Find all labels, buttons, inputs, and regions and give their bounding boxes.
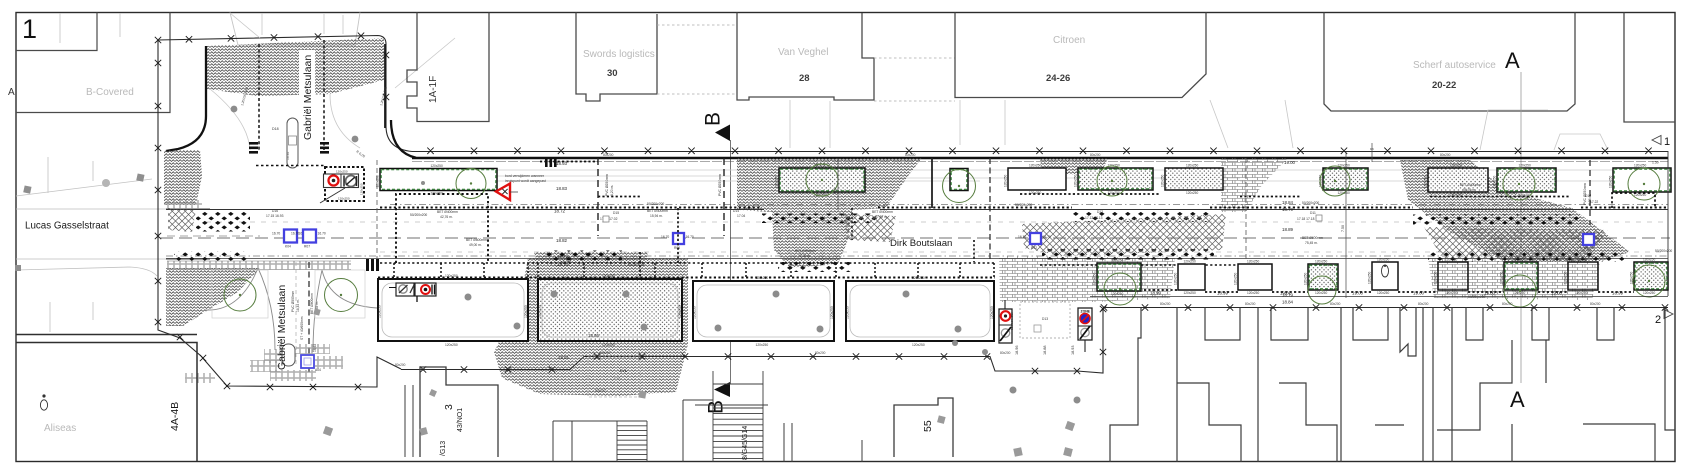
svg-text:18.83: 18.83	[556, 186, 568, 191]
svg-text:R6: R6	[1370, 147, 1374, 151]
svg-text:120x250: 120x250	[376, 175, 380, 187]
svg-text:120x250: 120x250	[336, 170, 348, 174]
svg-text:16.70: 16.70	[318, 232, 326, 236]
svg-text:120x250: 120x250	[1004, 175, 1008, 187]
svg-text:18.70: 18.70	[560, 260, 572, 265]
svg-text:1: 1	[1664, 136, 1670, 148]
svg-text:120x250: 120x250	[1247, 291, 1259, 295]
svg-text:R06: R06	[674, 246, 680, 250]
svg-text:49,00 m.: 49,00 m.	[798, 254, 811, 258]
svg-text:120x250: 120x250	[1500, 272, 1504, 284]
svg-text:80x200: 80x200	[1590, 302, 1601, 306]
svg-text:D15: D15	[613, 211, 619, 215]
svg-text:50/200x200: 50/200x200	[628, 263, 645, 267]
svg-text:Aliseas: Aliseas	[44, 423, 76, 434]
svg-text:16.70: 16.70	[686, 235, 694, 239]
svg-text:120x250: 120x250	[1513, 258, 1525, 262]
svg-text:Citroen: Citroen	[1053, 35, 1085, 46]
svg-text:6,20 m.: 6,20 m.	[610, 185, 614, 196]
svg-text:18.96: 18.96	[1015, 345, 1019, 355]
svg-text:50/200x200: 50/200x200	[1015, 203, 1032, 207]
svg-text:1: 1	[22, 14, 37, 44]
svg-text:BET Ø400mm: BET Ø400mm	[872, 210, 893, 214]
svg-text:D14: D14	[733, 209, 739, 213]
svg-text:80x200: 80x200	[603, 153, 614, 157]
svg-text:80x200: 80x200	[905, 153, 916, 157]
svg-text:120x250: 120x250	[1304, 273, 1308, 285]
svg-text:55: 55	[922, 420, 934, 432]
svg-text:120x250: 120x250	[1643, 291, 1655, 295]
svg-text:18.99: 18.99	[1217, 291, 1229, 296]
svg-text:120x250: 120x250	[1234, 273, 1238, 285]
svg-text:19.00: 19.00	[1284, 160, 1296, 165]
svg-text:43/NO1: 43/NO1	[457, 408, 464, 432]
svg-text:K04: K04	[285, 245, 291, 249]
svg-text:1.50: 1.50	[1652, 161, 1659, 165]
svg-text:19.00: 19.00	[1551, 291, 1563, 296]
svg-text:120x250: 120x250	[1575, 291, 1587, 295]
svg-text:16.70: 16.70	[1018, 235, 1026, 239]
svg-text:120x250: 120x250	[1377, 291, 1389, 295]
svg-text:120x250: 120x250	[990, 306, 994, 319]
svg-text:18.89: 18.89	[1282, 227, 1294, 232]
svg-text:120x250: 120x250	[1450, 193, 1462, 197]
svg-text:BET Ø400mm: BET Ø400mm	[437, 210, 458, 214]
svg-text:D18: D18	[272, 127, 279, 131]
svg-text:120x250: 120x250	[1186, 164, 1198, 168]
svg-text:PVC Ø500mm: PVC Ø500mm	[291, 290, 295, 312]
svg-text:17.13 17.13: 17.13 17.13	[1085, 216, 1103, 220]
svg-text:120x250: 120x250	[1445, 258, 1457, 262]
svg-text:18.99: 18.99	[1150, 291, 1162, 296]
svg-text:18.86: 18.86	[588, 333, 600, 338]
svg-text:7.10: 7.10	[833, 188, 837, 195]
svg-text:Van Veghel: Van Veghel	[778, 47, 828, 58]
svg-text:120x250: 120x250	[445, 343, 458, 347]
svg-text:49,00 m.: 49,00 m.	[469, 243, 482, 247]
svg-text:50/200x200: 50/200x200	[647, 202, 664, 206]
svg-text:120x250: 120x250	[1368, 272, 1372, 284]
svg-text:4A-4B: 4A-4B	[169, 402, 181, 431]
svg-text:A: A	[1505, 48, 1520, 73]
svg-text:120x250: 120x250	[756, 343, 769, 347]
svg-text:20-22: 20-22	[1432, 80, 1456, 91]
svg-text:120x250: 120x250	[1450, 164, 1462, 168]
svg-text:120x250: 120x250	[1519, 164, 1531, 168]
svg-text:15,94 m.: 15,94 m.	[650, 214, 663, 218]
svg-text:BET Ø600mm: BET Ø600mm	[1302, 236, 1323, 240]
svg-text:8/G45/G14: 8/G45/G14	[742, 426, 749, 460]
svg-text:24-26: 24-26	[1046, 73, 1070, 84]
svg-text:120x250: 120x250	[1377, 258, 1389, 262]
svg-text:120x250: 120x250	[1564, 272, 1568, 284]
svg-text:120x250: 120x250	[1093, 273, 1097, 285]
svg-text:120x250: 120x250	[1315, 291, 1327, 295]
svg-text:120x250: 120x250	[1029, 164, 1041, 168]
svg-text:16.70: 16.70	[272, 232, 280, 236]
svg-text:19.00: 19.00	[1352, 291, 1364, 296]
svg-text:80x200: 80x200	[1418, 302, 1429, 306]
svg-text:120x250: 120x250	[538, 305, 542, 318]
svg-text:18.93: 18.93	[556, 161, 568, 166]
svg-text:16.95: 16.95	[286, 152, 290, 160]
svg-text:Dirk Boutslaan: Dirk Boutslaan	[890, 238, 952, 249]
svg-text:18.93: 18.93	[1071, 345, 1075, 355]
svg-text:18.99: 18.99	[1612, 291, 1624, 296]
svg-text:120x250: 120x250	[338, 197, 350, 201]
svg-text:BET Ø400mm: BET Ø400mm	[1460, 183, 1481, 187]
svg-text:D13: D13	[1042, 317, 1048, 321]
svg-text:80x200: 80x200	[1330, 302, 1341, 306]
svg-text:16.70: 16.70	[1596, 236, 1604, 240]
svg-text:120x250: 120x250	[1424, 176, 1428, 188]
svg-text:80x200: 80x200	[595, 389, 606, 393]
svg-text:120x250: 120x250	[1161, 175, 1165, 187]
svg-text:19.01: 19.01	[558, 355, 570, 360]
svg-text:Swords logistics: Swords logistics	[583, 49, 655, 60]
svg-text:D16: D16	[272, 209, 278, 213]
svg-text:80x200: 80x200	[395, 363, 406, 367]
svg-text:Lucas Gasselstraat: Lucas Gasselstraat	[25, 221, 109, 232]
svg-text:42,76 m.: 42,76 m.	[440, 215, 453, 219]
svg-text:120x250: 120x250	[1074, 175, 1078, 187]
svg-text:18.72: 18.72	[557, 254, 569, 259]
svg-text:A: A	[8, 87, 15, 98]
svg-text:120x250: 120x250	[1434, 272, 1438, 284]
svg-text:120x250: 120x250	[678, 305, 682, 318]
svg-text:80x200: 80x200	[1090, 153, 1101, 157]
svg-text:A: A	[1510, 387, 1525, 412]
svg-text:30: 30	[607, 68, 618, 79]
svg-text:50/200x200: 50/200x200	[1468, 295, 1485, 299]
svg-text:17.18 17.18: 17.18 17.18	[1297, 217, 1315, 221]
svg-text:16.70: 16.70	[661, 235, 669, 239]
svg-text:3: 3	[443, 404, 455, 410]
svg-text:LvL: LvL	[620, 368, 628, 373]
svg-text:2: 2	[1655, 314, 1661, 326]
svg-text:130/150x250: 130/150x250	[1010, 312, 1014, 330]
svg-text:75,45 m.: 75,45 m.	[1305, 241, 1318, 245]
svg-text:PVC Ø250mm: PVC Ø250mm	[605, 174, 609, 196]
svg-text:R06: R06	[1584, 247, 1590, 251]
svg-text:120x250: 120x250	[1493, 176, 1497, 188]
svg-text:D12: D12	[1097, 210, 1103, 214]
svg-text:80x200: 80x200	[1000, 351, 1011, 355]
svg-text:18.79: 18.79	[1282, 207, 1294, 212]
svg-text:R07: R07	[304, 245, 310, 249]
svg-text:80x200: 80x200	[815, 351, 826, 355]
svg-text:18.84: 18.84	[1282, 200, 1294, 205]
svg-text:19.00: 19.00	[1413, 291, 1425, 296]
svg-text:120x250: 120x250	[1575, 258, 1587, 262]
svg-text:Gabriël Metsulaan: Gabriël Metsulaan	[302, 55, 314, 140]
svg-text:ST + 40/600mm: ST + 40/600mm	[300, 316, 304, 340]
svg-text:120x250: 120x250	[431, 192, 443, 196]
svg-text:120x250: 120x250	[1247, 260, 1259, 264]
svg-text:bord verwijderen wanneer: bord verwijderen wanneer	[505, 174, 545, 178]
svg-text:/G13: /G13	[440, 441, 447, 456]
svg-text:80x200: 80x200	[1502, 302, 1513, 306]
svg-text:BET Ø400mm: BET Ø400mm	[647, 209, 668, 213]
svg-text:19.00: 19.00	[1484, 291, 1496, 296]
svg-text:19.01: 19.01	[1280, 291, 1292, 296]
svg-text:BET Ø600mm: BET Ø600mm	[795, 249, 816, 253]
svg-text:18.84: 18.84	[1282, 300, 1294, 305]
svg-text:120x250: 120x250	[1445, 291, 1457, 295]
svg-text:7.50: 7.50	[1341, 225, 1345, 232]
svg-text:120x250: 120x250	[1609, 176, 1613, 188]
svg-text:120x250: 120x250	[1634, 164, 1646, 168]
svg-text:120x250: 120x250	[912, 343, 925, 347]
svg-text:120x250: 120x250	[1184, 291, 1196, 295]
svg-text:17.04: 17.04	[737, 214, 745, 218]
svg-text:120x250: 120x250	[1174, 273, 1178, 285]
svg-text:1A-1F: 1A-1F	[428, 76, 439, 103]
svg-text:120x250: 120x250	[1184, 260, 1196, 264]
svg-text:120x250: 120x250	[1111, 292, 1123, 296]
svg-text:17.15 16.93: 17.15 16.93	[266, 214, 284, 218]
svg-text:BET Ø600mm: BET Ø600mm	[466, 238, 487, 242]
svg-text:120x250: 120x250	[693, 306, 697, 319]
svg-text:16.70: 16.70	[1571, 236, 1579, 240]
svg-text:D11: D11	[1310, 211, 1316, 215]
svg-text:120x250: 120x250	[1643, 258, 1655, 262]
svg-text:80x200: 80x200	[1440, 153, 1451, 157]
svg-text:120x250: 120x250	[524, 305, 528, 318]
svg-text:Gabriël Metsulaan: Gabriël Metsulaan	[276, 285, 288, 370]
svg-text:18.88: 18.88	[1043, 345, 1047, 355]
svg-text:18.82: 18.82	[556, 238, 568, 243]
svg-text:120x250: 120x250	[1111, 259, 1123, 263]
svg-text:120x250: 120x250	[378, 305, 382, 318]
svg-text:B: B	[705, 400, 728, 414]
svg-text:16.70: 16.70	[1043, 235, 1051, 239]
svg-text:18.72: 18.72	[554, 209, 566, 214]
svg-text:120x250: 120x250	[846, 306, 850, 319]
svg-text:120x250: 120x250	[431, 164, 443, 168]
svg-text:80x200: 80x200	[600, 351, 611, 355]
svg-text:B: B	[702, 112, 725, 126]
svg-text:18,44 m.: 18,44 m.	[296, 299, 300, 312]
svg-text:50/200x200: 50/200x200	[410, 213, 427, 217]
svg-text:56,76 m.: 56,76 m.	[1463, 188, 1476, 192]
svg-text:28: 28	[799, 73, 810, 84]
svg-text:R92: R92	[1031, 246, 1037, 250]
svg-text:87,87 m.: 87,87 m.	[875, 215, 888, 219]
svg-text:120x250: 120x250	[775, 176, 779, 188]
svg-text:LvL: LvL	[614, 375, 621, 380]
svg-text:120x250: 120x250	[830, 306, 834, 319]
svg-text:20.94: 20.94	[279, 344, 283, 352]
svg-text:Scherf autoservice: Scherf autoservice	[1413, 60, 1496, 71]
svg-text:120x250: 120x250	[1186, 191, 1198, 195]
svg-text:120x250: 120x250	[445, 274, 458, 278]
svg-text:16.70: 16.70	[291, 232, 299, 236]
svg-text:120x250: 120x250	[602, 343, 615, 347]
svg-text:17.22: 17.22	[1590, 200, 1598, 204]
svg-text:PVC Ø250mm: PVC Ø250mm	[718, 174, 722, 196]
svg-text:80x200: 80x200	[1245, 302, 1256, 306]
svg-text:120x250: 120x250	[1315, 260, 1327, 264]
svg-text:BET Ø600mm: BET Ø600mm	[310, 293, 314, 314]
svg-text:80x200: 80x200	[1160, 302, 1171, 306]
svg-text:50/200x200: 50/200x200	[1302, 201, 1319, 205]
svg-text:B-Covered: B-Covered	[86, 87, 134, 98]
svg-text:D10: D10	[1585, 194, 1591, 198]
svg-text:120x250: 120x250	[360, 183, 364, 195]
svg-text:16.63: 16.63	[313, 344, 317, 352]
svg-text:50/200x200: 50/200x200	[1655, 249, 1672, 253]
